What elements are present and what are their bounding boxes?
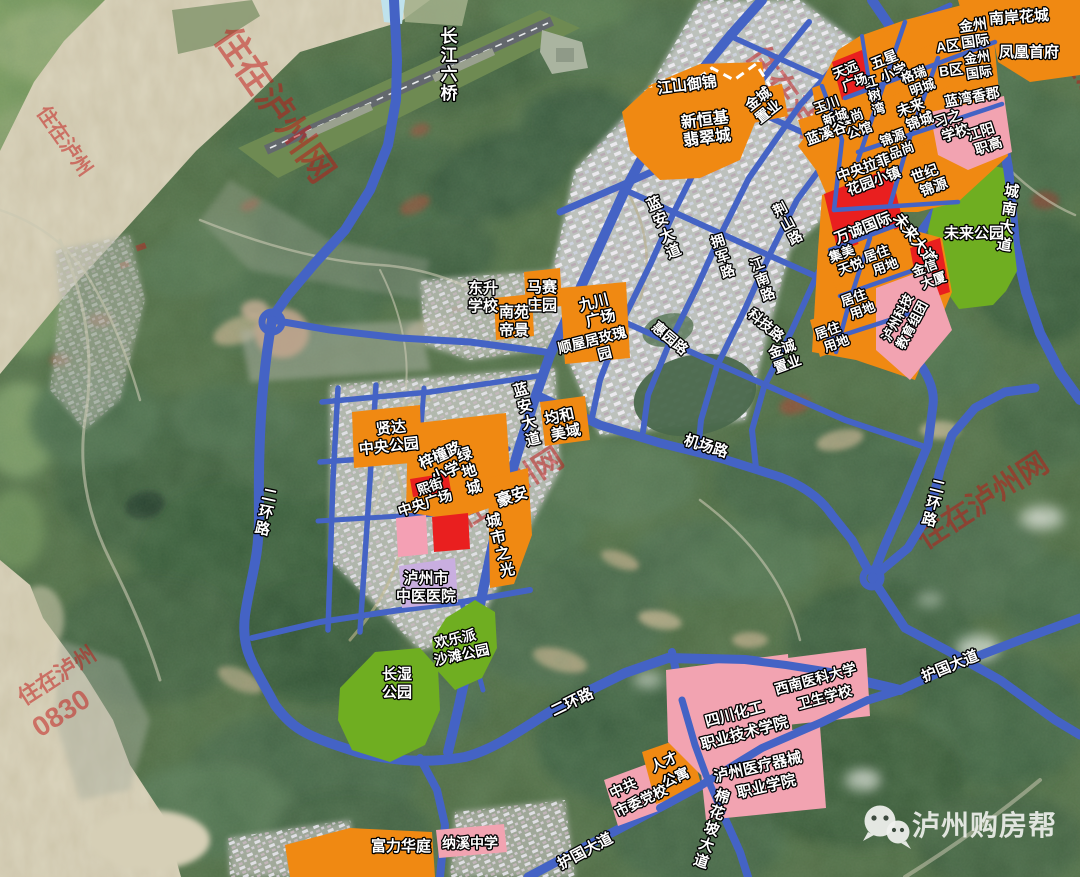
svg-text:泸州购房帮: 泸州购房帮 [912,809,1057,841]
svg-text:纳溪中学: 纳溪中学 [442,835,498,851]
svg-text:富力华庭: 富力华庭 [371,837,432,855]
svg-text:凤凰首府: 凤凰首府 [999,43,1059,61]
svg-text:A区: A区 [935,36,961,55]
svg-text:未来公园: 未来公园 [943,224,1004,242]
svg-text:新恒基翡翠城: 新恒基翡翠城 [680,107,733,150]
svg-text:金州国际: 金州国际 [962,48,993,81]
svg-text:金州国际: 金州国际 [957,15,990,51]
svg-text:长江六桥: 长江六桥 [441,26,459,103]
svg-text:B区: B区 [938,60,964,79]
